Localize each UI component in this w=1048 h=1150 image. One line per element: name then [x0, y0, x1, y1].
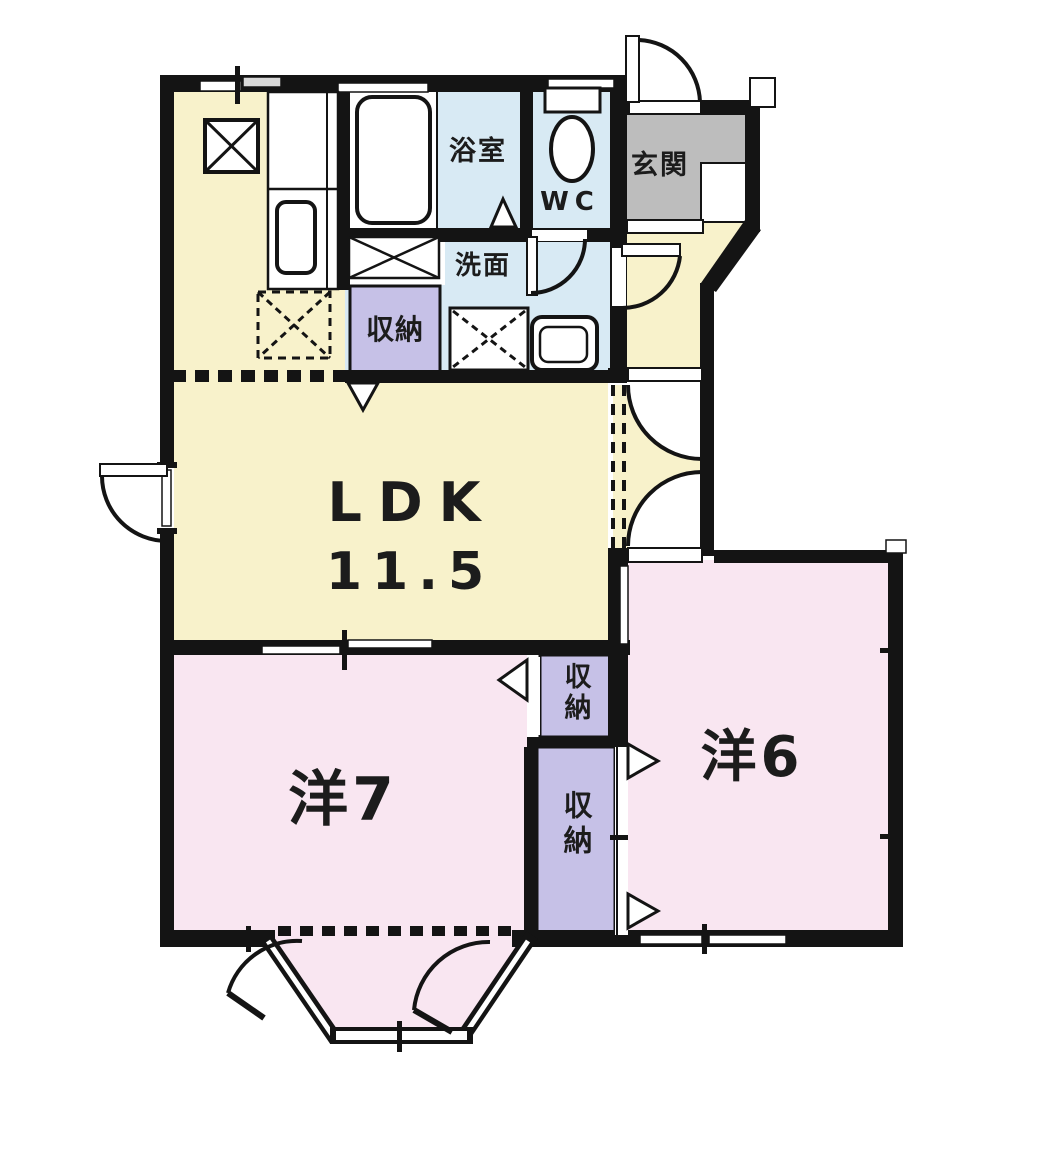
- room-label-bath: 浴室: [449, 135, 507, 167]
- wall-tick: [880, 648, 890, 653]
- room-label-west7: 洋7: [288, 765, 398, 835]
- bathtub-icon: [357, 97, 430, 223]
- wall-face-strip: [620, 566, 628, 644]
- floor-plan: 浴室 WC 玄関 洗面 収納 LDK 11.5 洋7 洋6 収納 収納: [0, 0, 1048, 1150]
- kitchen-sink-icon: [277, 202, 315, 273]
- entrance-step: [627, 220, 703, 233]
- room-label-west7-storage: 収納: [560, 662, 592, 724]
- wall-tick: [880, 834, 890, 839]
- floor-plan-drawing: 浴室 WC 玄関 洗面 収納 LDK 11.5 洋7 洋6 収納 収納: [0, 0, 1048, 1150]
- room-label-west6: 洋6: [701, 725, 804, 790]
- room-label-wc: WC: [540, 187, 600, 217]
- room-label-entrance: 玄関: [631, 149, 689, 181]
- entrance-porch-post: [750, 78, 775, 107]
- vent-fan-icon: [205, 120, 258, 172]
- meter-box-icon: [349, 237, 439, 278]
- casement-leaf-left: [228, 993, 264, 1018]
- washbasin-icon: [532, 317, 597, 370]
- wall-notch: [886, 540, 906, 553]
- room-label-ldk: LDK: [327, 471, 496, 534]
- room-label-west6-storage: 収納: [559, 790, 593, 860]
- room-label-washroom: 洗面: [455, 251, 511, 281]
- shoe-cabinet: [701, 163, 747, 222]
- wall-tick: [246, 926, 251, 952]
- washer-space: [450, 308, 528, 370]
- bath-window: [338, 83, 428, 92]
- room-label-hall-storage: 収納: [366, 313, 424, 346]
- room-area-ldk: 11.5: [326, 542, 494, 602]
- kitchen-counter: [268, 92, 338, 289]
